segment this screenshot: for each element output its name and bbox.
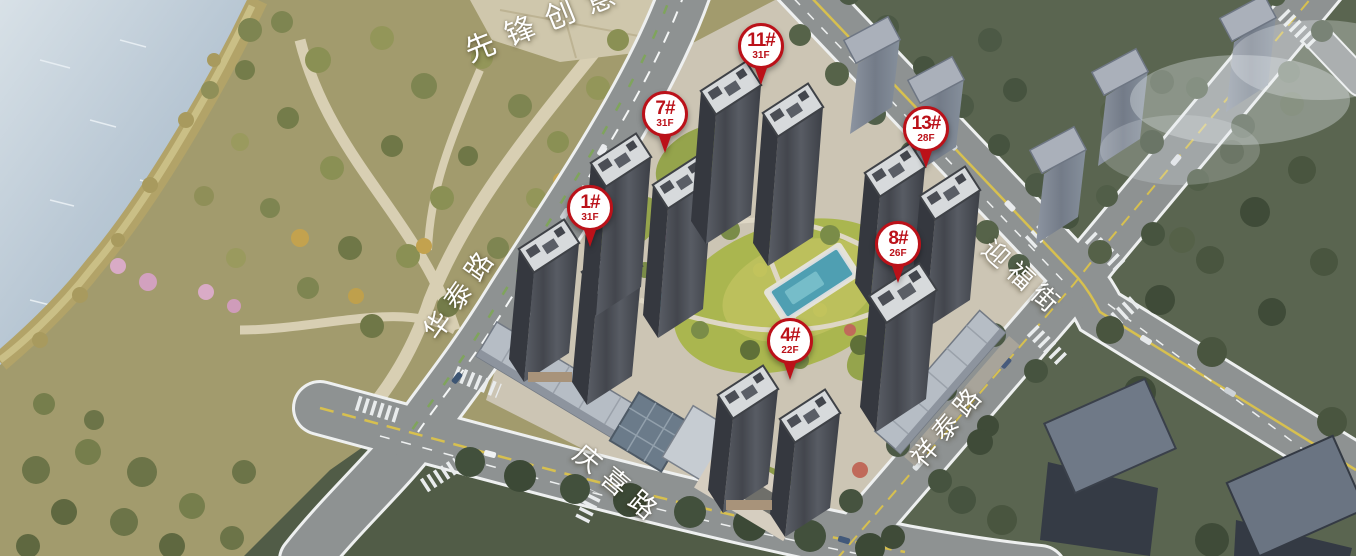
pin-building-number: 13#	[912, 114, 941, 133]
building-pin-4[interactable]: 4# 22F	[767, 318, 813, 392]
pin-floor-count: 26F	[889, 249, 906, 259]
pin-building-number: 8#	[888, 229, 907, 248]
pin-circle: 8# 26F	[875, 221, 921, 267]
pin-floor-count: 28F	[917, 134, 934, 144]
pin-circle: 13# 28F	[903, 106, 949, 152]
masterplan-render	[0, 0, 1356, 556]
aerial-masterplan-view: 先锋创意 华泰路 庆喜路 迎福街 祥泰路 1# 31F 7# 31F 11# 3…	[0, 0, 1356, 556]
pin-circle: 1# 31F	[567, 185, 613, 231]
building-pin-11[interactable]: 11# 31F	[738, 23, 784, 97]
pin-floor-count: 22F	[781, 346, 798, 356]
pin-floor-count: 31F	[752, 51, 769, 61]
pin-building-number: 11#	[747, 31, 775, 50]
pin-building-number: 1#	[580, 193, 599, 212]
pin-floor-count: 31F	[581, 213, 598, 223]
pin-circle: 4# 22F	[767, 318, 813, 364]
pin-floor-count: 31F	[656, 119, 673, 129]
building-pin-8[interactable]: 8# 26F	[875, 221, 921, 295]
pin-circle: 11# 31F	[738, 23, 784, 69]
pin-building-number: 4#	[780, 326, 799, 345]
building-pin-7[interactable]: 7# 31F	[642, 91, 688, 165]
building-pin-13[interactable]: 13# 28F	[903, 106, 949, 180]
pin-building-number: 7#	[655, 99, 674, 118]
pin-circle: 7# 31F	[642, 91, 688, 137]
building-pin-1[interactable]: 1# 31F	[567, 185, 613, 259]
